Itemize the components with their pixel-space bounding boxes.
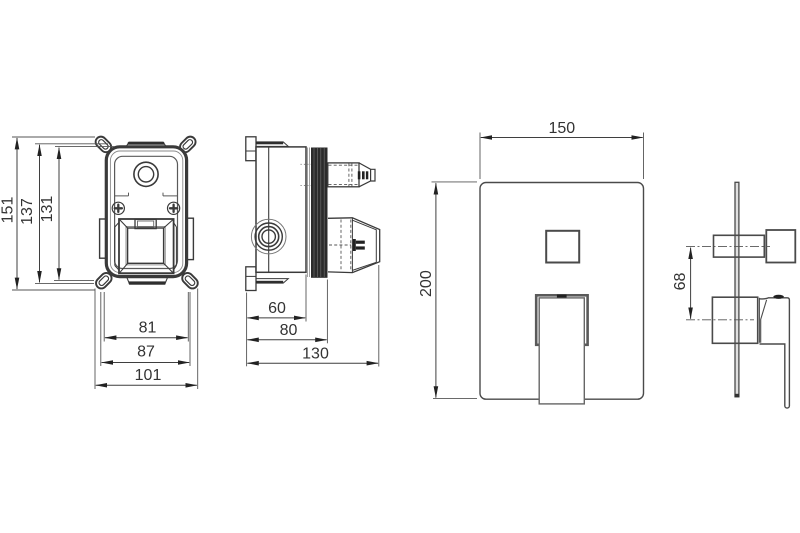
svg-text:150: 150 <box>548 120 575 137</box>
svg-text:80: 80 <box>280 322 298 339</box>
svg-text:101: 101 <box>135 367 162 384</box>
svg-text:81: 81 <box>139 320 157 337</box>
svg-text:137: 137 <box>19 198 36 225</box>
svg-text:60: 60 <box>268 300 286 317</box>
svg-text:151: 151 <box>0 197 17 224</box>
svg-text:87: 87 <box>137 344 155 361</box>
svg-text:130: 130 <box>302 345 329 362</box>
svg-text:68: 68 <box>672 273 689 291</box>
svg-text:131: 131 <box>39 196 56 223</box>
svg-text:200: 200 <box>418 270 435 297</box>
